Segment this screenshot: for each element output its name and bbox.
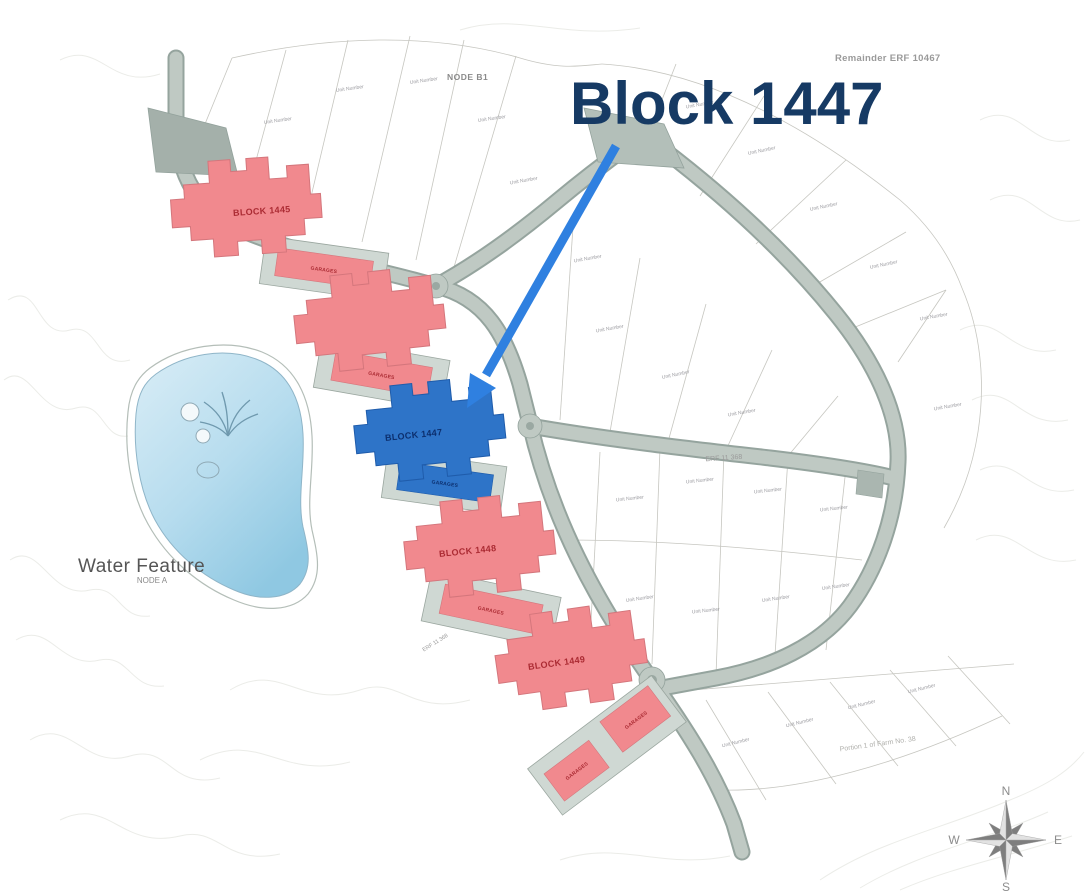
compass-west-label: W xyxy=(948,833,960,847)
unit-number-label: Unit Number xyxy=(785,717,814,730)
pond-rock xyxy=(196,429,210,443)
unit-number-label: Unit Number xyxy=(762,594,791,604)
unit-number-label: Unit Number xyxy=(573,254,602,265)
road-pad-right xyxy=(856,470,884,498)
erf-11368-label-2: ERF 11 368 xyxy=(422,633,450,653)
site-plan-page: Unit Number Unit Number Unit Number Unit… xyxy=(0,0,1086,891)
compass-rose: N S W E xyxy=(948,784,1062,891)
unit-number-label: Unit Number xyxy=(754,487,783,496)
unit-number-label: Unit Number xyxy=(616,495,645,504)
unit-number-label: Unit Number xyxy=(747,145,776,157)
unit-number-label: Unit Number xyxy=(686,477,715,486)
site-plan-map: Unit Number Unit Number Unit Number Unit… xyxy=(0,0,1086,891)
remainder-erf-label: Remainder ERF 10467 xyxy=(835,53,941,64)
water-feature-label: Water Feature xyxy=(78,556,205,577)
page-title: Block 1447 xyxy=(570,70,884,137)
unit-number-label: Unit Number xyxy=(410,76,439,86)
unit-number-label: Unit Number xyxy=(907,683,936,696)
unit-number-label: Unit Number xyxy=(626,594,655,604)
roundabout-2-island xyxy=(526,422,534,430)
portion-farm-label: Portion 1 of Farm No. 38 xyxy=(839,736,916,754)
unit-number-label: Unit Number xyxy=(822,582,851,592)
unit-number-label: Unit Number xyxy=(721,737,750,750)
pointer-arrow xyxy=(467,146,616,408)
unit-number-label: Unit Number xyxy=(692,607,721,616)
unit-number-label: Unit Number xyxy=(919,312,948,323)
compass-south-label: S xyxy=(1002,880,1010,891)
compass-north-label: N xyxy=(1002,784,1011,798)
unit-number-label: Unit Number xyxy=(869,259,898,271)
node-b1-label: NODE B1 xyxy=(447,72,488,82)
compass-east-label: E xyxy=(1054,833,1062,847)
unit-number-label: Unit Number xyxy=(336,84,365,94)
roundabout-1-island xyxy=(432,282,440,290)
unit-number-label: Unit Number xyxy=(809,201,838,213)
unit-number-label: Unit Number xyxy=(595,324,624,335)
node-a-label: NODE A xyxy=(137,576,168,585)
pond-rock xyxy=(181,403,199,421)
unit-number-label: Unit Number xyxy=(509,176,538,187)
unit-number-label: Unit Number xyxy=(727,408,756,419)
unit-number-label: Unit Number xyxy=(661,369,690,381)
unit-number-label: Unit Number xyxy=(820,505,849,514)
unit-number-label: Unit Number xyxy=(847,699,876,712)
unit-number-label: Unit Number xyxy=(478,114,507,124)
unit-number-label: Unit Number xyxy=(933,402,962,413)
